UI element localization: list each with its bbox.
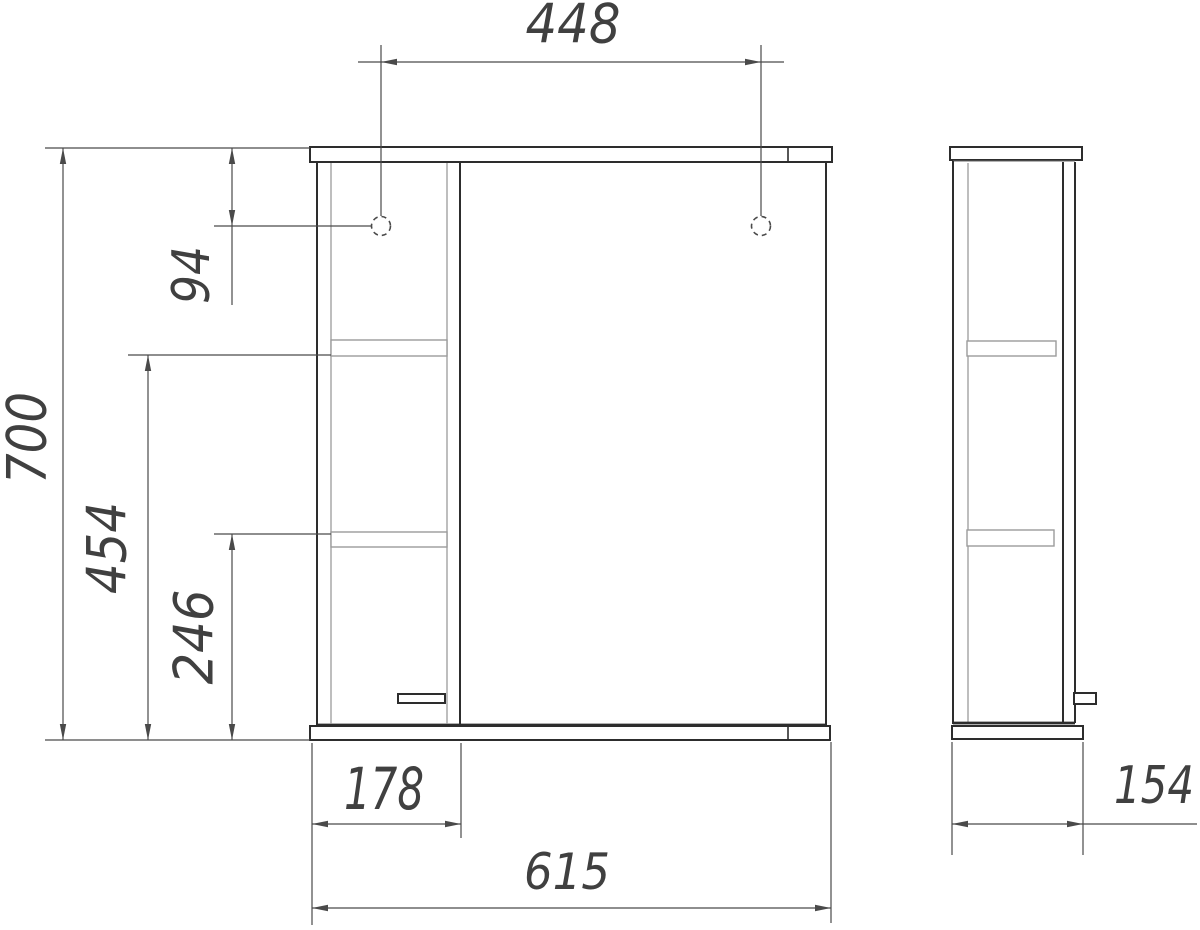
top-panel <box>310 147 832 162</box>
side-top-panel-face <box>950 147 1082 160</box>
cabinet-body <box>316 162 826 726</box>
arrowhead <box>445 821 461 827</box>
front-view <box>310 147 832 740</box>
side-view <box>950 147 1096 739</box>
dim-value: 700 <box>0 392 59 484</box>
arrowhead <box>745 59 761 65</box>
arrowhead <box>381 59 397 65</box>
dim-value: 154 <box>1114 756 1194 816</box>
arrowhead <box>1067 821 1083 827</box>
dim-label-454: 454 <box>76 502 139 594</box>
arrowhead <box>60 148 66 164</box>
arrowhead <box>229 148 235 164</box>
side-top-panel <box>950 147 1082 160</box>
side-body <box>953 161 1096 724</box>
arrowhead <box>815 905 831 911</box>
side-lower-shelf <box>967 530 1054 546</box>
dim-label-615: 615 <box>524 843 610 901</box>
cabinet-technical-drawing: 448 700 94 <box>0 0 1200 930</box>
dim-value: 246 <box>163 590 226 685</box>
dim-label-700: 700 <box>0 392 59 484</box>
dim-label-246: 246 <box>163 590 226 685</box>
dim-lower-shelf: 246 <box>163 534 332 740</box>
dim-value: 448 <box>526 0 621 56</box>
arrowhead <box>229 534 235 550</box>
lower-shelf <box>331 532 447 547</box>
dim-hole-spacing: 448 <box>358 0 784 216</box>
dimensions: 448 700 94 <box>0 0 1197 925</box>
arrowhead <box>229 724 235 740</box>
dim-overall-depth: 154 <box>952 742 1197 855</box>
bottom-panel <box>310 726 830 740</box>
dim-overall-height: 700 <box>0 148 310 740</box>
arrowhead <box>229 210 235 226</box>
dim-value: 178 <box>344 755 424 823</box>
dim-value: 454 <box>76 502 139 594</box>
top-panel-face <box>310 147 832 162</box>
arrowhead <box>952 821 968 827</box>
side-door-handle <box>1074 693 1096 704</box>
dim-shelf-section-width: 178 <box>312 743 461 925</box>
mounting-hole-right <box>752 217 771 236</box>
arrowhead <box>60 724 66 740</box>
arrowhead <box>145 355 151 371</box>
dim-value: 615 <box>524 843 610 901</box>
upper-shelf <box>331 340 447 356</box>
arrowhead <box>145 724 151 740</box>
arrowhead <box>312 821 328 827</box>
dim-value: 94 <box>162 246 222 304</box>
dim-label-178: 178 <box>344 755 424 823</box>
dim-hole-top-offset: 94 <box>162 148 371 305</box>
door-handle <box>398 694 445 703</box>
side-bottom-panel-face <box>952 726 1083 739</box>
drawing-sheet: 448 700 94 <box>0 0 1200 930</box>
side-bottom-panel <box>952 726 1083 739</box>
bottom-panel-face <box>310 726 830 740</box>
dim-label-154: 154 <box>1114 756 1194 816</box>
dim-label-448: 448 <box>526 0 621 56</box>
dim-label-94: 94 <box>162 246 222 304</box>
arrowhead <box>312 905 328 911</box>
mounting-hole-left <box>372 217 391 236</box>
mounting-holes <box>372 217 771 236</box>
side-upper-shelf <box>967 341 1056 356</box>
shelf-column <box>331 163 447 724</box>
